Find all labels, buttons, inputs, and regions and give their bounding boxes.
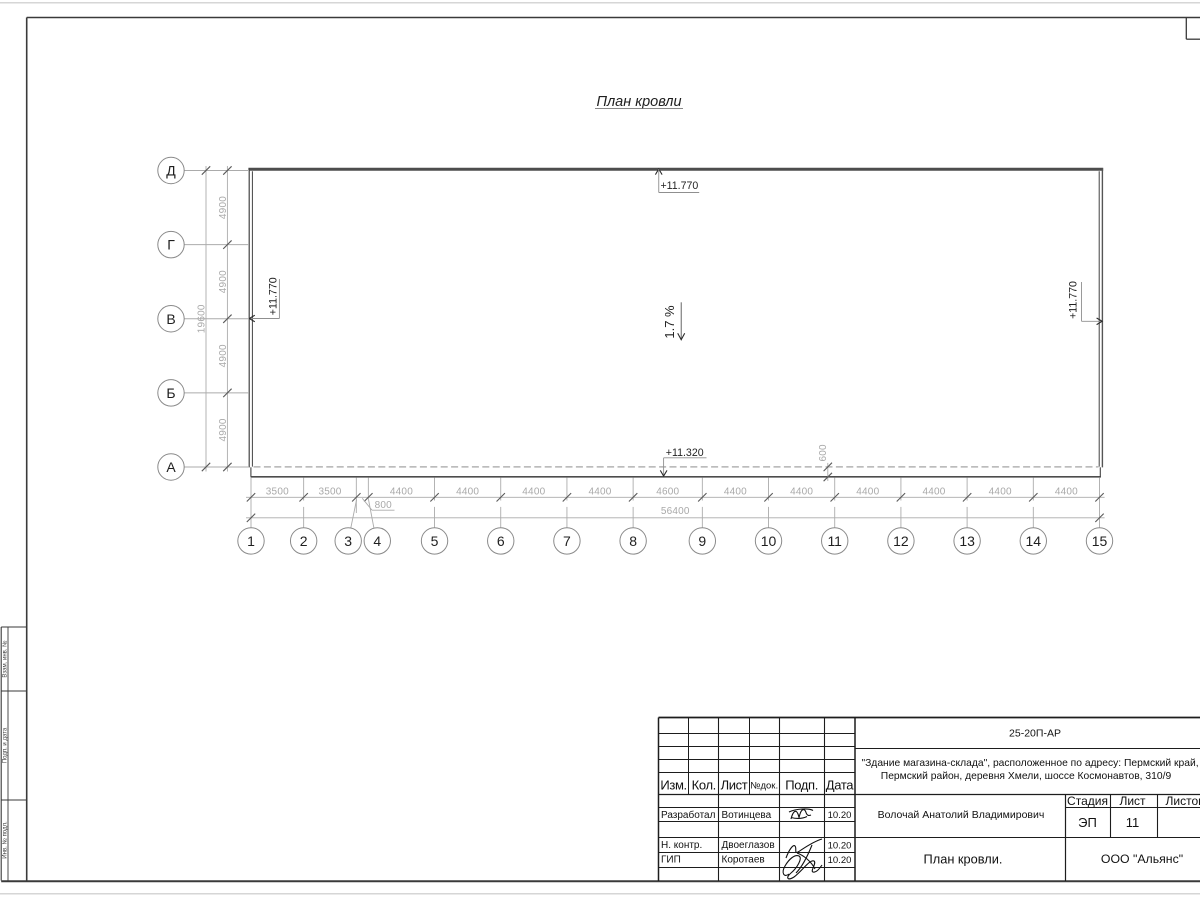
svg-text:Стадия: Стадия — [1067, 794, 1108, 808]
svg-text:+11.320: +11.320 — [666, 447, 704, 459]
svg-text:Коротаев: Коротаев — [722, 855, 765, 866]
svg-text:Взам. инв. №: Взам. инв. № — [2, 640, 9, 677]
svg-text:Подп.: Подп. — [785, 777, 818, 792]
svg-text:Инв. № подл.: Инв. № подл. — [2, 821, 9, 859]
svg-text:В: В — [166, 311, 175, 327]
svg-text:25-20П-АР: 25-20П-АР — [1009, 728, 1061, 740]
svg-text:ЭП: ЭП — [1078, 815, 1097, 830]
svg-text:Кол.: Кол. — [692, 777, 716, 792]
svg-text:4400: 4400 — [856, 487, 879, 498]
svg-text:Вотинцева: Вотинцева — [722, 810, 772, 821]
svg-text:6: 6 — [497, 533, 505, 549]
svg-text:19600: 19600 — [197, 304, 208, 333]
svg-text:Дата: Дата — [826, 777, 855, 792]
svg-text:ООО "Альянс": ООО "Альянс" — [1101, 852, 1183, 866]
svg-text:Н. контр.: Н. контр. — [661, 840, 702, 851]
svg-text:1.7 %: 1.7 % — [662, 305, 677, 339]
svg-text:4900: 4900 — [218, 196, 229, 219]
svg-text:4400: 4400 — [989, 487, 1012, 498]
svg-text:4900: 4900 — [218, 344, 229, 367]
svg-text:10.20: 10.20 — [828, 840, 852, 851]
svg-text:4: 4 — [373, 533, 381, 549]
svg-text:4400: 4400 — [790, 487, 813, 498]
svg-text:3500: 3500 — [266, 487, 289, 498]
svg-text:3: 3 — [344, 533, 352, 549]
svg-text:12: 12 — [893, 533, 909, 549]
svg-text:5: 5 — [431, 533, 439, 549]
svg-text:Листов: Листов — [1166, 794, 1200, 808]
svg-text:600: 600 — [818, 444, 829, 462]
svg-text:План кровли.: План кровли. — [924, 851, 1003, 866]
svg-text:10: 10 — [761, 533, 777, 549]
svg-text:Двоеглазов: Двоеглазов — [722, 840, 775, 851]
svg-text:ГИП: ГИП — [661, 855, 681, 866]
svg-text:А: А — [166, 459, 176, 475]
svg-text:10.20: 10.20 — [828, 810, 852, 821]
svg-text:№док.: №док. — [750, 780, 778, 791]
svg-text:Б: Б — [166, 385, 175, 401]
svg-text:4400: 4400 — [922, 487, 945, 498]
svg-text:10.20: 10.20 — [828, 855, 852, 866]
svg-text:Д: Д — [166, 163, 176, 179]
svg-text:3500: 3500 — [318, 487, 341, 498]
svg-text:13: 13 — [959, 533, 975, 549]
svg-text:Волочай Анатолий Владимирович: Волочай Анатолий Владимирович — [878, 809, 1045, 821]
svg-text:Изм.: Изм. — [660, 777, 686, 792]
svg-text:+11.770: +11.770 — [268, 277, 280, 315]
svg-text:4900: 4900 — [218, 418, 229, 441]
svg-text:14: 14 — [1026, 533, 1042, 549]
svg-text:+11.770: +11.770 — [1067, 281, 1079, 319]
svg-text:7: 7 — [563, 533, 571, 549]
svg-text:Разработал: Разработал — [661, 809, 716, 821]
svg-text:800: 800 — [375, 500, 393, 511]
svg-text:15: 15 — [1092, 533, 1108, 549]
svg-text:4400: 4400 — [390, 487, 413, 498]
svg-text:1: 1 — [247, 533, 255, 549]
svg-text:2: 2 — [300, 533, 308, 549]
svg-text:4400: 4400 — [1055, 487, 1078, 498]
svg-text:Лист: Лист — [1119, 794, 1146, 808]
svg-text:4400: 4400 — [589, 487, 612, 498]
svg-text:56400: 56400 — [661, 506, 690, 517]
svg-text:План кровли: План кровли — [596, 94, 681, 110]
svg-text:Подп. и дата: Подп. и дата — [3, 727, 9, 763]
svg-text:+11.770: +11.770 — [661, 180, 699, 192]
svg-text:4400: 4400 — [522, 487, 545, 498]
svg-text:4400: 4400 — [724, 487, 747, 498]
svg-text:Г: Г — [167, 237, 175, 253]
svg-text:4400: 4400 — [456, 487, 479, 498]
svg-text:Пермский район, деревня Хмели,: Пермский район, деревня Хмели, шоссе Кос… — [881, 771, 1172, 782]
svg-text:11: 11 — [1126, 815, 1140, 830]
svg-text:"Здание магазина-склада", расп: "Здание магазина-склада", расположенное … — [861, 758, 1198, 769]
svg-text:11: 11 — [827, 533, 842, 549]
svg-text:8: 8 — [629, 533, 637, 549]
svg-text:9: 9 — [698, 533, 706, 549]
svg-text:4600: 4600 — [656, 487, 679, 498]
svg-text:Лист: Лист — [721, 777, 748, 792]
svg-text:4900: 4900 — [218, 270, 229, 293]
